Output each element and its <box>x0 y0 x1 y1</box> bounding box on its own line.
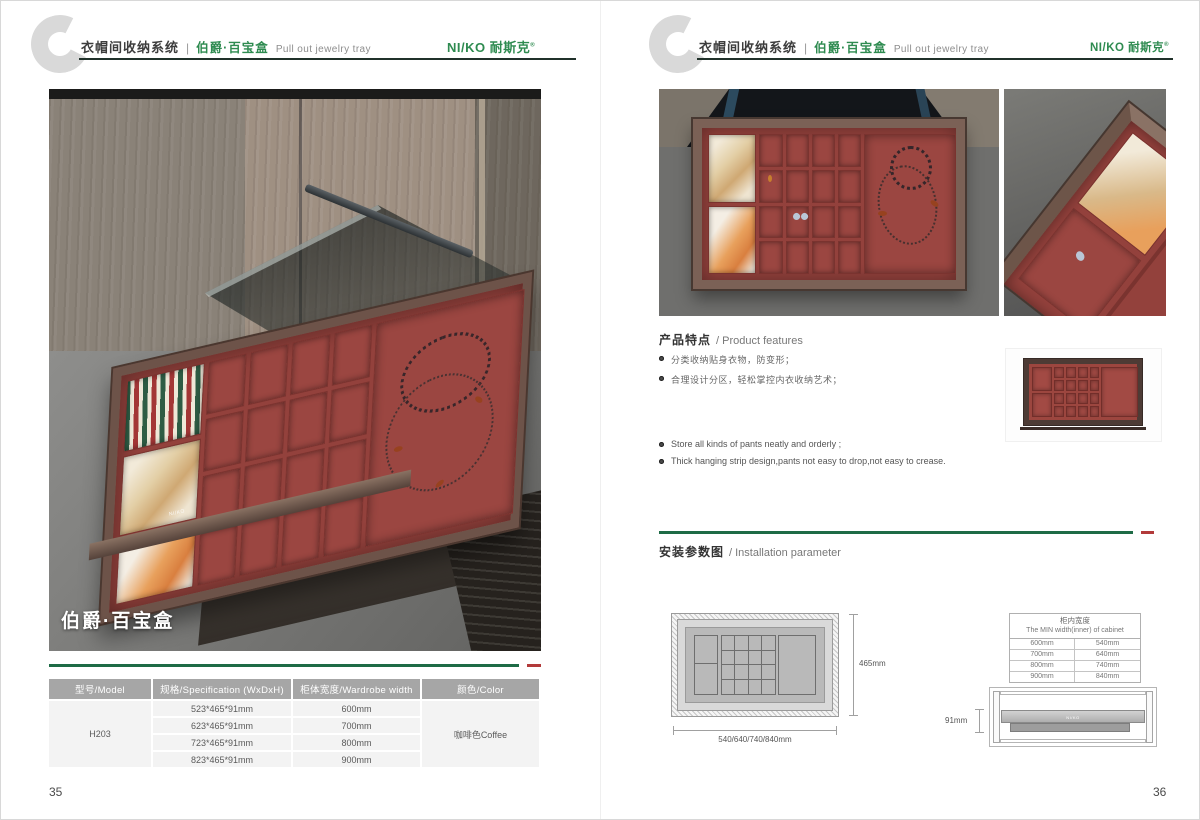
diagram-left-column <box>694 635 717 696</box>
tray-top-photo <box>659 89 999 316</box>
features-title-en: / Product features <box>716 335 803 347</box>
header-underline <box>79 58 576 60</box>
tray-logo-text: NI/KO <box>1066 715 1079 720</box>
width-dimension-line <box>673 730 837 731</box>
width-cell: 700mm <box>293 718 420 733</box>
page-header: 衣帽间收纳系统 | 伯爵·百宝盒 Pull out jewelry tray N… <box>601 1 1200 71</box>
page-number: 35 <box>49 785 62 799</box>
scarf-cell <box>708 134 756 203</box>
jewelry-tray <box>693 119 965 289</box>
header-category: 衣帽间收纳系统 <box>699 37 797 56</box>
table-row: 900mm840mm <box>1010 672 1140 682</box>
diagram-grid <box>721 635 776 696</box>
tray-middle-grid <box>197 324 372 586</box>
bullet-item: Store all kinds of pants neatly and orde… <box>659 439 946 449</box>
diagram-frame <box>678 620 832 710</box>
width-cell: 900mm <box>293 752 420 767</box>
main-product-photo: NI/KO 伯爵·百宝盒 <box>49 89 541 651</box>
features-bullets-en: Store all kinds of pants neatly and orde… <box>659 439 946 473</box>
cabinet-side-post <box>993 691 1000 743</box>
min-width-title-cn: 柜内宽度 <box>1011 616 1139 626</box>
thumbnail-tray-base <box>1020 427 1146 430</box>
registered-mark: ® <box>530 43 535 49</box>
scarf-cell <box>123 363 205 453</box>
header-subtitle: Pull out jewelry tray <box>894 44 989 55</box>
tray-corner <box>1004 103 1166 316</box>
bullet-item: 分类收纳贴身衣物，防变形； <box>659 353 842 366</box>
tray-left-column <box>708 134 756 274</box>
header-underline <box>697 58 1173 60</box>
width-cell: 600mm <box>293 701 420 716</box>
header-title: 衣帽间收纳系统 | 伯爵·百宝盒 Pull out jewelry tray <box>81 37 371 56</box>
spec-cell: 523*465*91mm <box>153 701 291 716</box>
color-cell: 咖啡色Coffee <box>422 701 539 767</box>
spec-table: 型号/Model 规格/Specification (WxDxH) 柜体宽度/W… <box>49 679 541 767</box>
thumbnail-tray <box>1024 359 1142 425</box>
tray-closeup-photo <box>1004 89 1166 316</box>
catalog-spread: 衣帽间收纳系统 | 伯爵·百宝盒 Pull out jewelry tray N… <box>0 0 1200 820</box>
table-row: 600mm540mm <box>1010 639 1140 650</box>
amber-bead <box>878 211 887 216</box>
height-dimension-label: 465mm <box>859 659 886 668</box>
bullet-text: 合理设计分区，轻松掌控内衣收纳艺术； <box>671 373 842 386</box>
cabinet-top-bar <box>1000 691 1146 695</box>
page-36: 衣帽间收纳系统 | 伯爵·百宝盒 Pull out jewelry tray N… <box>601 1 1200 820</box>
tray-open-area <box>365 289 525 548</box>
features-bullets-cn: 分类收纳贴身衣物，防变形； 合理设计分区，轻松掌控内衣收纳艺术； <box>659 353 842 393</box>
photo-caption: 伯爵·百宝盒 <box>61 606 174 633</box>
nisko-logo: NI/KO 耐斯克® <box>1090 39 1169 55</box>
nisko-logo-text: NI/KO 耐斯克 <box>447 40 530 55</box>
cabinet-side-post <box>1146 691 1153 743</box>
tray-height-dimension-line <box>975 709 984 733</box>
table-row: 700mm640mm <box>1010 650 1140 661</box>
diagram-tray <box>686 628 824 702</box>
tray-compartments <box>708 134 950 274</box>
features-section-title: 产品特点 / Product features <box>659 331 803 348</box>
header-product-name: 伯爵·百宝盒 <box>196 37 269 56</box>
tray-height-dimension-label: 91mm <box>945 716 967 725</box>
table-row: 800mm740mm <box>1010 661 1140 672</box>
features-title-cn: 产品特点 <box>659 331 711 348</box>
bullet-item: Thick hanging strip design,pants not eas… <box>659 456 946 466</box>
min-width-title-en: The MIN width(inner) of cabinet <box>1011 626 1139 635</box>
thumbnail-compartments <box>1032 367 1134 417</box>
spec-cell: 623*465*91mm <box>153 718 291 733</box>
installation-title-cn: 安装参数图 <box>659 543 724 560</box>
col-header-width: 柜体宽度/Wardrobe width <box>293 679 420 699</box>
bullet-text: 分类收纳贴身衣物，防变形； <box>671 353 795 366</box>
header-subtitle: Pull out jewelry tray <box>276 44 371 55</box>
bullet-text: Thick hanging strip design,pants not eas… <box>671 456 946 466</box>
installation-title-en: / Installation parameter <box>729 547 841 559</box>
bullet-icon <box>659 376 664 381</box>
spec-cell: 723*465*91mm <box>153 735 291 750</box>
diagram-open-area <box>778 635 815 696</box>
page-gutter <box>600 1 601 820</box>
side-view-diagram: NI/KO <box>989 687 1157 747</box>
width-dimension-label: 540/640/740/840mm <box>673 735 837 744</box>
model-cell: H203 <box>49 701 151 767</box>
installation-section-title: 安装参数图 / Installation parameter <box>659 543 841 560</box>
nisko-logo-text: NI/KO 耐斯克 <box>1090 42 1164 54</box>
col-header-model: 型号/Model <box>49 679 151 699</box>
tray-open-area <box>864 134 956 274</box>
page-number: 36 <box>1153 785 1166 799</box>
side-view-tray-lower <box>1010 723 1130 732</box>
tray-left-column <box>115 363 205 605</box>
header-title: 衣帽间收纳系统 | 伯爵·百宝盒 Pull out jewelry tray <box>699 37 989 56</box>
header-category: 衣帽间收纳系统 <box>81 37 179 56</box>
width-cell: 800mm <box>293 735 420 750</box>
col-header-spec: 规格/Specification (WxDxH) <box>153 679 291 699</box>
page-header: 衣帽间收纳系统 | 伯爵·百宝盒 Pull out jewelry tray N… <box>1 1 601 71</box>
bullet-icon <box>659 442 664 447</box>
side-view-tray: NI/KO <box>1001 710 1145 723</box>
section-divider <box>659 531 1154 534</box>
spec-cell: 823*465*91mm <box>153 752 291 767</box>
header-separator: | <box>186 41 189 55</box>
col-header-color: 颜色/Color <box>422 679 539 699</box>
bullet-icon <box>659 356 664 361</box>
bullet-text: Store all kinds of pants neatly and orde… <box>671 439 841 449</box>
product-thumbnail <box>1006 349 1161 441</box>
bullet-item: 合理设计分区，轻松掌控内衣收纳艺术； <box>659 373 842 386</box>
scarf-cell <box>708 206 756 275</box>
cabinet-bottom-bar <box>1000 739 1146 743</box>
page-35: 衣帽间收纳系统 | 伯爵·百宝盒 Pull out jewelry tray N… <box>1 1 601 820</box>
tray-middle-grid <box>759 134 861 274</box>
registered-mark: ® <box>1164 42 1169 48</box>
height-dimension-line <box>853 614 854 716</box>
min-width-table: 柜内宽度 The MIN width(inner) of cabinet 600… <box>1009 613 1141 683</box>
nisko-logo: NI/KO 耐斯克® <box>447 37 535 56</box>
min-width-table-header: 柜内宽度 The MIN width(inner) of cabinet <box>1010 614 1140 639</box>
section-divider <box>49 664 541 667</box>
header-product-name: 伯爵·百宝盒 <box>814 37 887 56</box>
top-view-diagram <box>671 613 839 717</box>
bullet-icon <box>659 459 664 464</box>
header-separator: | <box>804 41 807 55</box>
